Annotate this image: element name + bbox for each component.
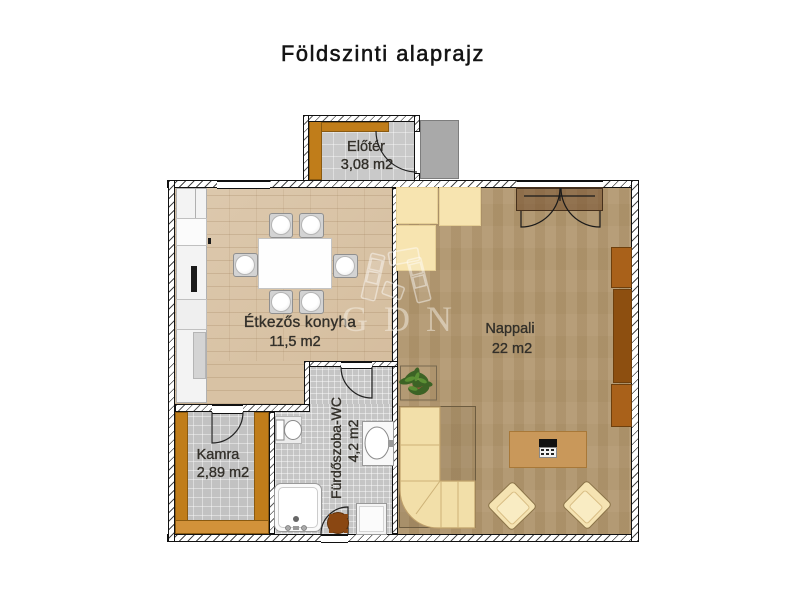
svg-text:GDN: GDN [342,299,468,339]
